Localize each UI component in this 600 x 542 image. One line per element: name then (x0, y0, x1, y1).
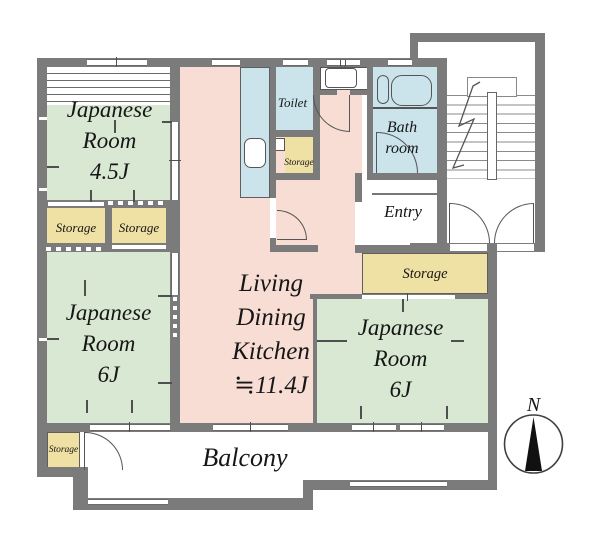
room-label-line: room (367, 138, 437, 159)
room-label-entry: Entry (362, 202, 444, 222)
kitchen-counter (240, 67, 270, 198)
wall (105, 208, 112, 243)
tatami-line (90, 190, 92, 202)
balcony-railing-opening (88, 499, 168, 505)
tatami-line (402, 299, 404, 312)
wall-joint (39, 188, 47, 191)
room-label-bathroom: Bath room (367, 117, 437, 159)
sliding-door (362, 295, 455, 299)
fusuma-dashes (46, 247, 105, 251)
wall-notch (418, 42, 438, 58)
doorway (450, 244, 487, 251)
wall (418, 58, 438, 67)
wall (367, 173, 447, 180)
storage-label: Storage (47, 220, 105, 236)
entry-floor (355, 202, 362, 245)
fusuma-panel (48, 202, 104, 206)
kitchen-sink (244, 138, 266, 168)
sliding-door (352, 424, 396, 431)
wall (37, 58, 47, 477)
window (212, 59, 240, 66)
door-leaf (449, 203, 450, 243)
wall (275, 245, 318, 252)
storage-label: Storage (46, 445, 81, 455)
window (388, 59, 412, 66)
sliding-door-tick (129, 422, 130, 432)
floor-plan: Japanese Room 4.5J Japanese Room 6J Japa… (0, 0, 600, 542)
room-label-line: 4.5J (47, 156, 172, 187)
room-label-line: Bath (367, 117, 437, 138)
wall-joint (39, 117, 47, 120)
storage-label: Storage (112, 220, 166, 236)
wall (270, 173, 320, 180)
room-label-line: Japanese (47, 297, 170, 328)
wall (272, 130, 313, 137)
bathtub (391, 75, 432, 106)
sliding-partition (171, 122, 179, 200)
room-label-line: Living (180, 267, 362, 301)
sliding-door (90, 424, 170, 431)
tatami-line (84, 280, 86, 296)
room-label-line: Dining (180, 301, 362, 335)
door-leaf (277, 239, 307, 240)
bath-counter (377, 75, 389, 104)
window-mullion (116, 57, 117, 67)
room-label-line: 6J (47, 359, 170, 390)
door-arc-balcony-storage (85, 432, 123, 470)
room-label-toilet: Toilet (272, 95, 313, 111)
wall (535, 33, 545, 252)
stair-break-line (443, 78, 493, 173)
window (87, 59, 147, 66)
fusuma-dashes (108, 201, 166, 205)
wall (350, 90, 367, 95)
room-label-line: Room (47, 328, 170, 359)
compass (500, 411, 568, 479)
room-label-ldk: Living Dining Kitchen ≒11.4J (180, 267, 362, 403)
fusuma-panel (112, 245, 166, 249)
tatami-line (131, 400, 133, 413)
tatami-line (446, 406, 448, 419)
room-label-japanese-4-5: Japanese Room 4.5J (47, 94, 172, 187)
door-leaf (349, 95, 350, 132)
wall-joint (39, 338, 47, 341)
door-leaf (533, 203, 534, 243)
sliding-partition (171, 253, 179, 295)
room-label-line: ≒11.4J (180, 369, 362, 403)
sliding-door (400, 424, 444, 431)
room-label-line: Kitchen (180, 335, 362, 369)
room-label-japanese-6-left: Japanese Room 6J (47, 297, 170, 390)
room-label-line: Room (47, 125, 172, 156)
window (283, 59, 308, 66)
wall (355, 173, 362, 202)
fusuma-dashes (173, 297, 177, 337)
sliding-door-tick (373, 422, 374, 432)
tatami-line (133, 190, 135, 202)
storage-label: Storage (362, 266, 488, 283)
tatami-line (86, 400, 88, 413)
sliding-door-tick (407, 293, 408, 301)
room-label-balcony: Balcony (160, 443, 330, 473)
tap-icon (340, 60, 346, 68)
wall (488, 245, 497, 490)
washbasin (325, 68, 357, 88)
sliding-door-tick (250, 422, 251, 432)
sliding-door-tick (421, 422, 422, 432)
balcony-railing-opening (350, 481, 447, 487)
entry-step-line (372, 193, 437, 195)
doorway (270, 198, 276, 238)
bath-partition-line (373, 107, 437, 109)
storage-label: Storage (283, 158, 315, 168)
door-leaf (84, 432, 85, 470)
tatami-line (360, 406, 362, 419)
doorway (497, 244, 534, 251)
wall (410, 33, 545, 42)
room-label-line: Japanese (47, 94, 172, 125)
